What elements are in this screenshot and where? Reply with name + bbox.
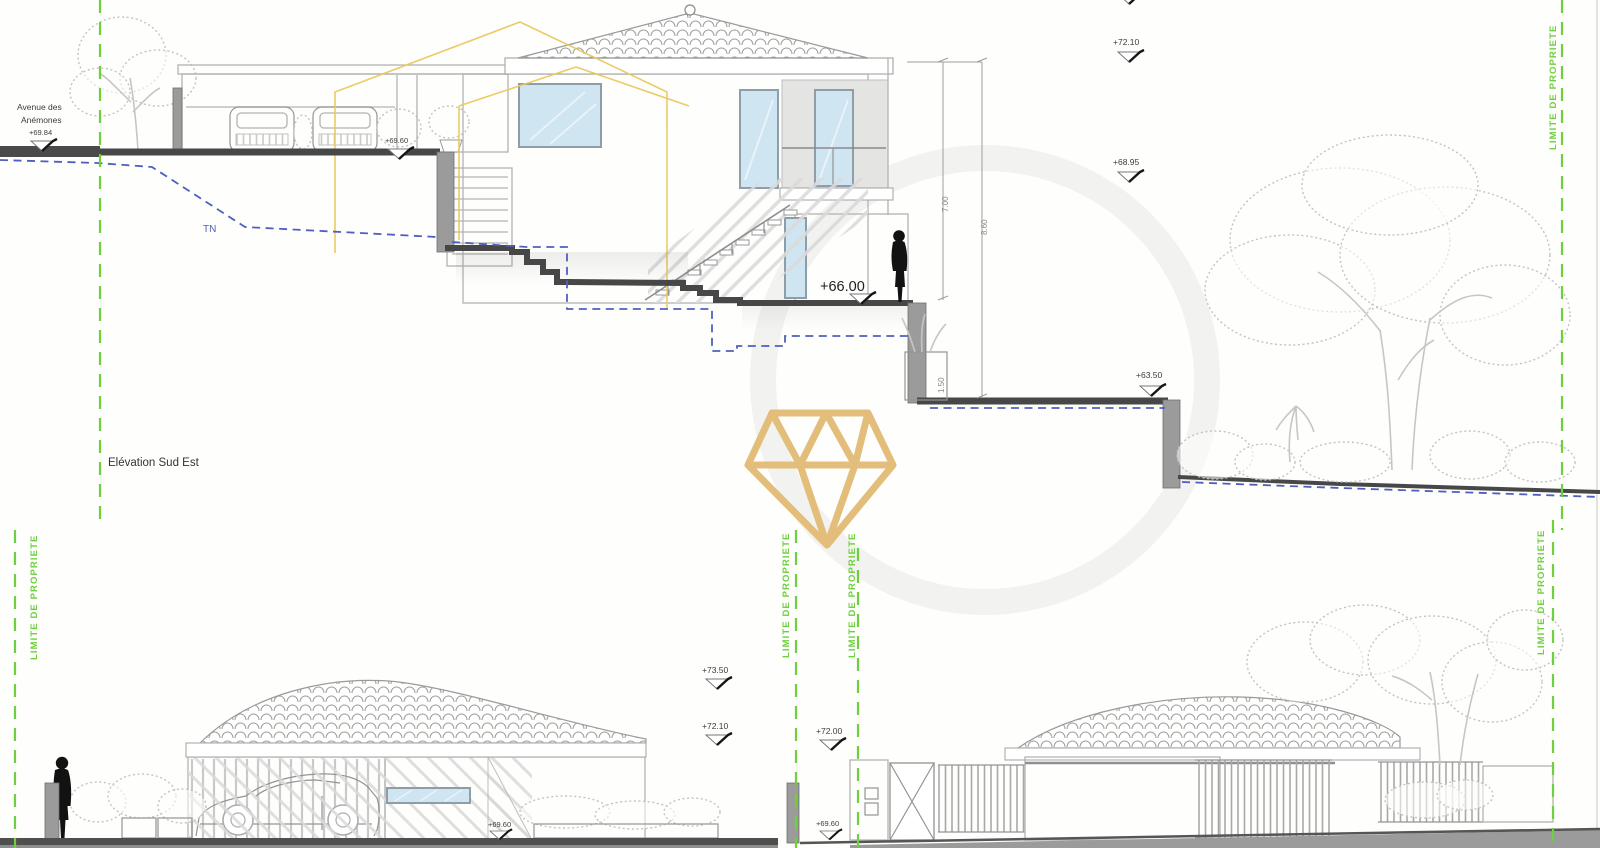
elevation-drawing-canvas: 7.00 8.60 1.50 — [0, 0, 1600, 848]
dim-planter-depth: 1.50 — [937, 377, 946, 393]
street-name-line1: Avenue des — [17, 102, 62, 112]
fence-bars-a — [938, 765, 1025, 832]
bl-street-level: +69.60 — [488, 820, 511, 829]
level-terrace: +66.00 — [820, 279, 865, 295]
property-limit-label-center-1: LIMITE DE PROPRIETE — [781, 533, 792, 658]
fence-bars-b — [1195, 760, 1332, 838]
dim-terrace-height: 7.00 — [941, 196, 950, 212]
roof-finial — [685, 5, 695, 15]
bl-eave-level: +72.10 — [702, 721, 729, 731]
bl-ridge-level: +73.50 — [702, 665, 729, 675]
property-limit-label-bottom-right: LIMITE DE PROPRIETE — [1536, 530, 1547, 655]
street-ground-left — [0, 838, 778, 845]
terrace-shadow — [742, 305, 907, 331]
br-eave-level: +72.00 — [816, 726, 843, 736]
fascia-right-house — [1005, 748, 1420, 760]
boundary-wall-mid — [787, 783, 799, 843]
level-floor-mid: +68.95 — [1113, 157, 1140, 167]
property-limit-label-center-2: LIMITE DE PROPRIETE — [847, 533, 858, 658]
dim-garden-height: 8.60 — [980, 219, 989, 235]
terrain-naturel-label: TN — [203, 224, 216, 235]
boundary-wall-left — [45, 783, 59, 840]
fascia-left-house — [186, 743, 646, 757]
carport-hatch — [188, 757, 532, 840]
street-level-value: +69.84 — [29, 128, 52, 137]
architectural-drawing-sheet: 7.00 8.60 1.50 — [0, 0, 1600, 848]
entry-gate — [890, 763, 934, 840]
level-roof-parapet: +72.10 — [1113, 37, 1140, 47]
property-limit-label-top-right: LIMITE DE PROPRIETE — [1548, 25, 1559, 150]
property-limit-label-bottom-left: LIMITE DE PROPRIETE — [29, 535, 40, 660]
street-name-line2: Anémones — [21, 115, 62, 125]
level-garden: +63.50 — [1136, 370, 1163, 380]
level-garage: +69.60 — [385, 136, 408, 145]
elevation-title: Elévation Sud Est — [108, 457, 200, 469]
br-street-level: +69.60 — [816, 819, 839, 828]
